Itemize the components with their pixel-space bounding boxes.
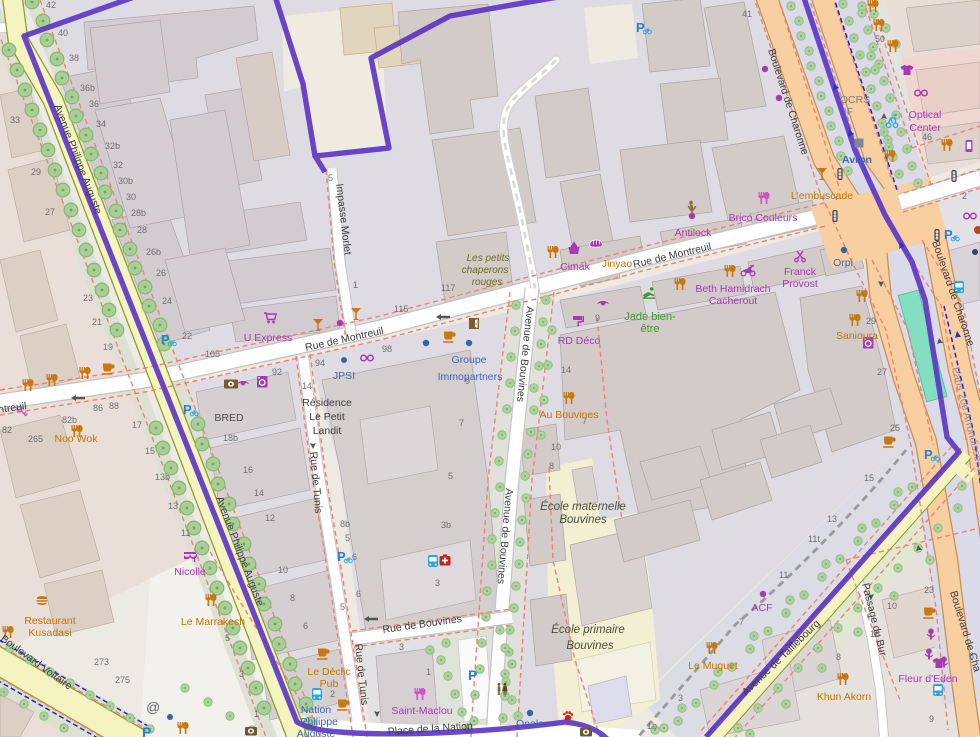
svg-text:6: 6 xyxy=(352,552,357,562)
svg-text:26b: 26b xyxy=(146,247,161,257)
svg-text:9: 9 xyxy=(929,714,934,724)
svg-text:50: 50 xyxy=(875,34,885,44)
svg-text:Résidence: Résidence xyxy=(302,397,352,409)
svg-text:10: 10 xyxy=(887,601,897,611)
svg-text:21: 21 xyxy=(92,317,102,327)
svg-text:82: 82 xyxy=(2,425,12,435)
svg-text:8: 8 xyxy=(836,652,841,662)
svg-text:Avron: Avron xyxy=(842,154,872,166)
svg-text:1b: 1b xyxy=(647,721,657,731)
svg-text:Orpi: Orpi xyxy=(833,257,853,269)
svg-text:36: 36 xyxy=(89,99,99,109)
svg-text:1: 1 xyxy=(254,709,259,719)
svg-text:13: 13 xyxy=(168,501,178,511)
svg-text:14: 14 xyxy=(561,365,571,375)
svg-text:3: 3 xyxy=(399,642,404,652)
svg-text:Provost: Provost xyxy=(782,278,818,290)
svg-text:98: 98 xyxy=(382,344,392,354)
svg-text:Sanioura: Sanioura xyxy=(836,330,878,342)
svg-text:5: 5 xyxy=(225,633,230,643)
svg-text:1: 1 xyxy=(353,280,358,290)
svg-text:Cimak: Cimak xyxy=(560,261,591,273)
svg-text:117: 117 xyxy=(441,283,455,293)
svg-text:Jinyao: Jinyao xyxy=(602,258,633,270)
svg-text:Bouvines: Bouvines xyxy=(566,640,614,652)
svg-text:27: 27 xyxy=(877,367,887,377)
svg-text:17: 17 xyxy=(132,420,142,430)
svg-text:22: 22 xyxy=(182,331,192,341)
svg-text:7: 7 xyxy=(459,418,464,428)
svg-text:23: 23 xyxy=(924,585,934,595)
svg-text:5: 5 xyxy=(345,533,350,543)
svg-text:@: @ xyxy=(146,699,160,715)
svg-text:28b: 28b xyxy=(131,208,146,218)
svg-text:15: 15 xyxy=(145,446,155,456)
svg-text:P: P xyxy=(142,724,151,737)
svg-text:86: 86 xyxy=(93,403,103,413)
svg-text:Optical: Optical xyxy=(909,109,942,121)
svg-text:9: 9 xyxy=(595,313,600,323)
svg-text:Groupe: Groupe xyxy=(451,354,486,366)
svg-text:7: 7 xyxy=(739,617,744,627)
svg-text:6: 6 xyxy=(969,651,974,661)
svg-text:11t: 11t xyxy=(808,534,820,544)
svg-text:Bouvines: Bouvines xyxy=(559,514,607,526)
svg-text:Khun Akorn: Khun Akorn xyxy=(817,691,871,703)
svg-text:115: 115 xyxy=(394,304,408,314)
svg-text:Beth Hamidrach: Beth Hamidrach xyxy=(695,283,770,295)
svg-text:8b: 8b xyxy=(340,519,350,529)
svg-text:34: 34 xyxy=(96,119,106,129)
svg-text:Restaurant: Restaurant xyxy=(24,615,75,627)
svg-text:BRED: BRED xyxy=(214,412,244,424)
svg-text:105: 105 xyxy=(205,349,220,359)
svg-text:29: 29 xyxy=(866,316,876,326)
svg-text:École primaire: École primaire xyxy=(551,623,625,636)
svg-text:Saint-Maclou: Saint-Maclou xyxy=(391,705,452,717)
svg-text:3b: 3b xyxy=(441,520,451,530)
svg-text:16: 16 xyxy=(870,629,880,639)
svg-text:Opale: Opale xyxy=(516,718,544,730)
svg-text:265: 265 xyxy=(28,434,43,444)
svg-text:11: 11 xyxy=(181,528,190,538)
svg-text:F: F xyxy=(847,106,853,118)
svg-text:1: 1 xyxy=(426,667,431,677)
svg-text:41: 41 xyxy=(742,9,752,19)
svg-text:Brico Couleurs: Brico Couleurs xyxy=(729,212,798,224)
svg-text:Le Petit: Le Petit xyxy=(309,411,345,423)
svg-text:Fleur d'Eden: Fleur d'Eden xyxy=(898,673,957,685)
svg-text:L'embuscade: L'embuscade xyxy=(791,190,853,202)
svg-text:Franck: Franck xyxy=(784,266,817,278)
svg-text:Antilock: Antilock xyxy=(675,227,713,239)
svg-text:94: 94 xyxy=(315,358,325,368)
svg-text:P: P xyxy=(468,667,477,683)
svg-text:Au Bouvines: Au Bouvines xyxy=(540,409,599,421)
svg-text:Nicolle: Nicolle xyxy=(174,566,206,578)
svg-text:8: 8 xyxy=(549,461,554,471)
svg-text:12: 12 xyxy=(265,513,275,523)
svg-text:Les petits: Les petits xyxy=(467,253,510,264)
svg-text:U Express: U Express xyxy=(244,332,292,344)
svg-text:26: 26 xyxy=(156,268,166,278)
svg-text:5: 5 xyxy=(340,602,345,612)
svg-text:23: 23 xyxy=(83,293,93,303)
svg-text:273: 273 xyxy=(94,657,109,667)
svg-text:RD Déco: RD Déco xyxy=(558,335,601,347)
svg-text:29: 29 xyxy=(31,167,41,177)
svg-text:19: 19 xyxy=(103,342,113,352)
svg-text:2: 2 xyxy=(330,689,335,699)
svg-text:88: 88 xyxy=(109,401,119,411)
svg-text:14: 14 xyxy=(302,381,312,391)
svg-text:Landit: Landit xyxy=(313,425,342,437)
svg-text:9: 9 xyxy=(465,376,470,386)
svg-text:rouges: rouges xyxy=(472,277,503,288)
svg-text:82b: 82b xyxy=(62,415,77,425)
svg-text:30: 30 xyxy=(126,192,136,202)
svg-text:chaperons: chaperons xyxy=(462,265,509,276)
svg-text:18b: 18b xyxy=(223,433,238,443)
svg-text:JPSI: JPSI xyxy=(333,370,355,382)
svg-text:5: 5 xyxy=(328,173,333,183)
svg-text:6: 6 xyxy=(303,621,308,631)
svg-text:11: 11 xyxy=(779,570,788,580)
svg-text:275: 275 xyxy=(115,675,130,685)
svg-text:92: 92 xyxy=(272,367,282,377)
svg-text:Noo Wok: Noo Wok xyxy=(55,433,99,445)
svg-text:Jade bien-: Jade bien- xyxy=(624,311,676,323)
svg-text:13: 13 xyxy=(827,514,837,524)
svg-text:2: 2 xyxy=(962,191,967,201)
svg-text:10: 10 xyxy=(551,442,561,452)
svg-text:30b: 30b xyxy=(118,176,133,186)
svg-text:École maternelle: École maternelle xyxy=(540,500,626,513)
svg-text:3: 3 xyxy=(678,693,683,703)
svg-text:38: 38 xyxy=(69,53,79,63)
svg-text:Nation: Nation xyxy=(301,704,332,716)
svg-text:40: 40 xyxy=(58,28,68,38)
svg-text:7: 7 xyxy=(582,416,587,426)
svg-text:Le Marrakech: Le Marrakech xyxy=(181,616,245,628)
svg-text:Kusadasi: Kusadasi xyxy=(28,627,71,639)
svg-text:Le Muguet: Le Muguet xyxy=(688,660,738,672)
svg-text:16: 16 xyxy=(243,465,253,475)
svg-text:27: 27 xyxy=(45,207,55,217)
svg-text:Auguste: Auguste xyxy=(297,728,336,737)
svg-text:46: 46 xyxy=(922,132,932,142)
svg-text:6: 6 xyxy=(356,589,361,599)
svg-text:OCRS: OCRS xyxy=(840,94,870,106)
svg-text:42: 42 xyxy=(46,0,56,10)
svg-text:28: 28 xyxy=(137,225,147,235)
svg-text:33: 33 xyxy=(10,115,20,125)
svg-text:13b: 13b xyxy=(155,472,170,482)
svg-text:- Philippe: - Philippe xyxy=(294,716,338,728)
svg-text:25: 25 xyxy=(890,423,900,433)
svg-text:Cacherout: Cacherout xyxy=(709,295,758,307)
svg-text:36b: 36b xyxy=(80,83,95,93)
svg-text:32: 32 xyxy=(113,160,123,170)
svg-text:être: être xyxy=(641,323,660,335)
svg-text:ACF: ACF xyxy=(752,602,773,614)
svg-text:3: 3 xyxy=(435,578,440,588)
svg-text:24: 24 xyxy=(162,296,172,306)
svg-text:8: 8 xyxy=(290,593,295,603)
svg-text:14: 14 xyxy=(254,488,264,498)
svg-text:10: 10 xyxy=(278,565,288,575)
svg-text:Le Déclic: Le Déclic xyxy=(307,666,350,678)
svg-text:5: 5 xyxy=(448,471,453,481)
svg-text:32b: 32b xyxy=(105,141,120,151)
svg-text:3: 3 xyxy=(239,669,244,679)
svg-text:15: 15 xyxy=(864,473,874,483)
